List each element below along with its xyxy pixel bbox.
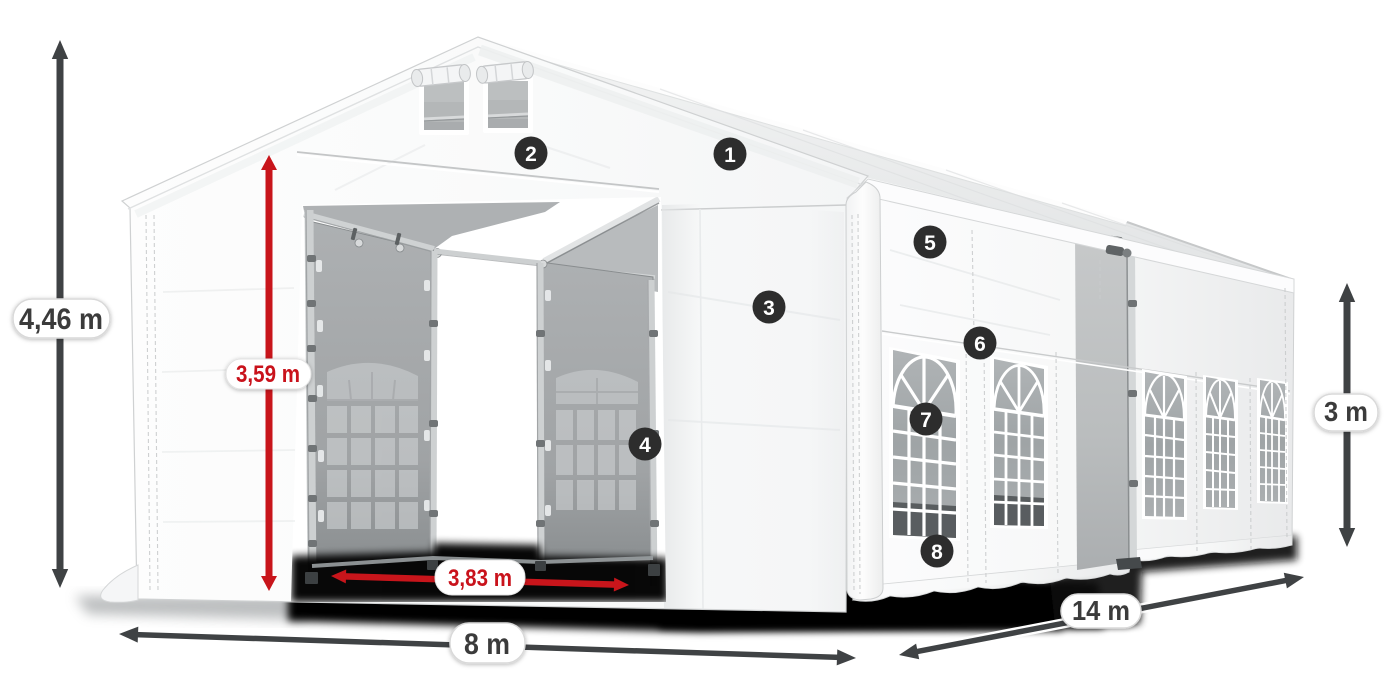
svg-text:5: 5 bbox=[924, 232, 936, 255]
svg-text:3,59 m: 3,59 m bbox=[236, 361, 300, 388]
svg-text:3 m: 3 m bbox=[1324, 396, 1368, 427]
svg-text:1: 1 bbox=[724, 144, 736, 167]
svg-text:8 m: 8 m bbox=[464, 628, 510, 661]
svg-text:8: 8 bbox=[931, 541, 943, 564]
svg-text:6: 6 bbox=[974, 333, 986, 356]
svg-text:7: 7 bbox=[920, 409, 932, 432]
svg-text:14 m: 14 m bbox=[1072, 595, 1130, 626]
svg-text:2: 2 bbox=[525, 143, 537, 166]
svg-text:3,83 m: 3,83 m bbox=[448, 565, 512, 592]
svg-text:4: 4 bbox=[639, 434, 651, 457]
svg-text:3: 3 bbox=[763, 297, 775, 320]
svg-text:4,46 m: 4,46 m bbox=[19, 303, 103, 336]
